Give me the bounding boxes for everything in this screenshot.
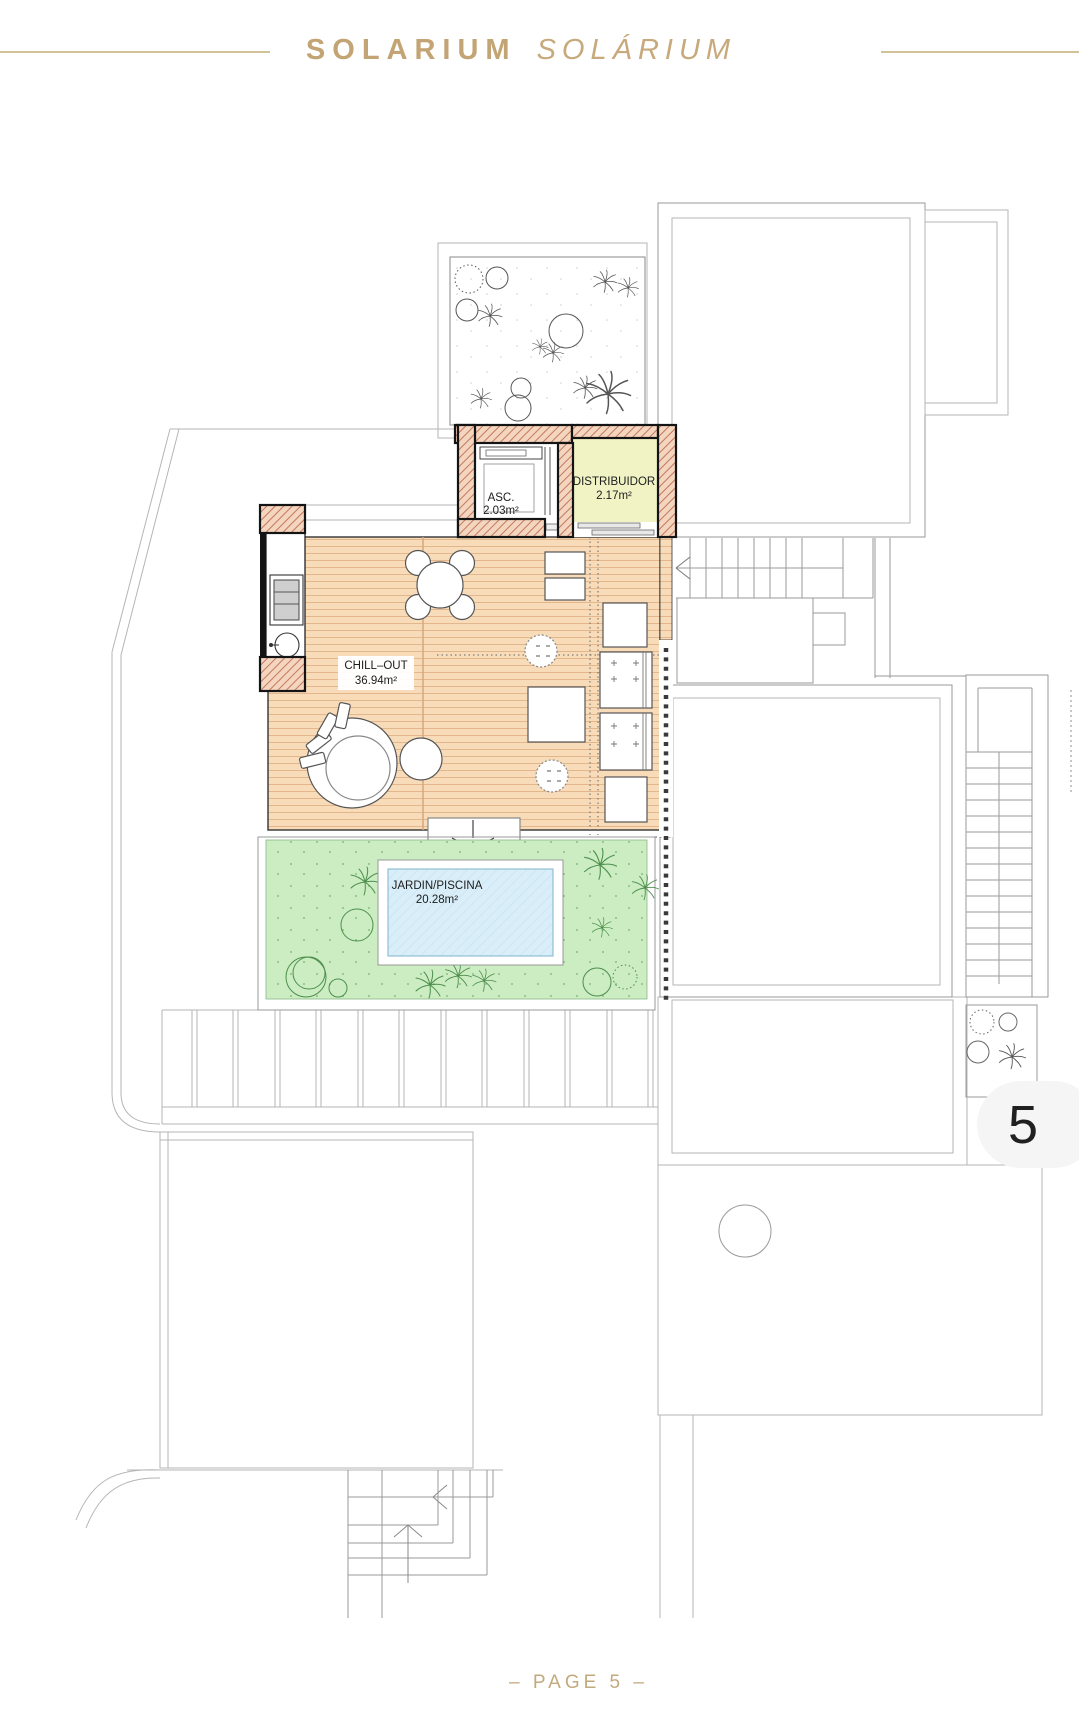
unit-number: 5 [1008,1094,1038,1156]
lounger-pad [603,603,647,647]
page-footer: – PAGE 5 – [78,1672,1079,1694]
sun-lounger [600,652,652,708]
floor-plan: ASC. 2.03m² DISTRIBUIDOR 2.17m² CHILL–OU… [0,0,1079,1731]
stairs-right [966,675,1048,1097]
side-table [525,635,557,667]
label-jardin-name: JARDIN/PISCINA [392,880,483,892]
sliding-door [578,523,640,528]
pouf [400,738,442,780]
sliding-door [592,530,654,535]
page-number-label: – PAGE 5 – [509,1672,648,1693]
pool [378,860,563,965]
label-asc-name: ASC. [488,492,515,504]
label-asc-area: 2.03m² [483,505,519,517]
coffee-table [528,687,585,742]
sun-lounger [600,713,652,770]
label-jardin-area: 20.28m² [416,894,458,906]
label-chillout-area: 36.94m² [355,675,397,687]
stairs-bottom [348,1470,493,1618]
stairs-upper [676,538,966,683]
dining-table [417,562,463,608]
label-chillout-name: CHILL–OUT [344,660,407,672]
glass-railing [659,640,673,1004]
upper-garden [450,257,645,425]
side-table [536,760,568,792]
unit-number-badge: 5 [977,1081,1079,1168]
right-planter-plants [967,1010,1026,1069]
storage-box [545,552,585,574]
label-distribuidor-name: DISTRIBUIDOR [573,476,655,488]
brochure-page: SOLARIUMSOLÁRIUM [0,0,1079,1731]
pergola-louvres [162,1010,658,1124]
garden-area [258,837,659,1010]
lounger-pad [605,777,647,822]
storage-box [545,578,585,600]
outdoor-kitchen [266,533,305,657]
label-distribuidor-area: 2.17m² [596,490,632,502]
